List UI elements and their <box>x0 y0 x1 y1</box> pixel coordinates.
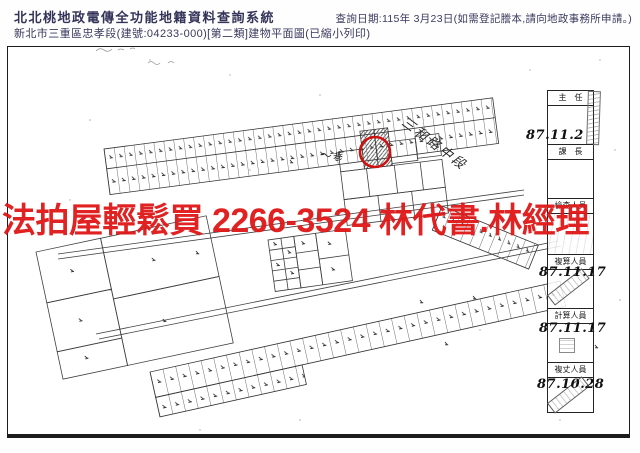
stamp-row-rechecker: 複算人員 87.11.17 <box>548 254 593 308</box>
stamp-row-section-chief: 課 長 <box>548 144 593 198</box>
seal-stamp <box>559 338 575 353</box>
document-page: 北北桃地政電傳全功能地籍資料查詢系統 新北市三重區忠孝段(建號:04233-00… <box>0 0 640 453</box>
stamp-sign-area: 87.11.2 <box>548 106 593 144</box>
document-subtitle: 新北市三重區忠孝段(建號:04233-000)[第二類]建物平面圖(已縮小列印) <box>14 25 370 41</box>
stamp-sign-area: 87.10.28 <box>548 378 593 412</box>
approval-date: 87.11.2 <box>526 129 584 142</box>
system-title: 北北桃地政電傳全功能地籍資料查詢系統 <box>14 7 275 26</box>
stamp-sign-area <box>548 160 593 198</box>
stamp-row-calculator: 計算人員 87.11.17 <box>548 308 593 362</box>
approval-date: 87.11.17 <box>539 266 606 279</box>
stamp-row-director: 主 任 87.11.2 <box>548 91 593 144</box>
approval-date: 87.11.17 <box>539 322 606 335</box>
stamp-row-surveyor: 複丈人員 87.10.28 <box>548 362 593 412</box>
stamp-row-title: 主 任 <box>548 91 593 106</box>
approval-stamp-panel: 主 任 87.11.2 課 長 檢查人員 複算人員 87.11.17 計算人員 … <box>547 90 594 413</box>
stamp-sign-area: 87.11.17 <box>548 270 593 308</box>
watermark-text: 法拍屋輕鬆買 2266-3524 林代書.林經理 <box>2 201 640 242</box>
stamp-row-title: 課 長 <box>548 144 593 160</box>
seal-stamp <box>586 91 601 145</box>
stamp-row-title: 複丈人員 <box>548 362 593 378</box>
approval-date: 87.10.28 <box>537 378 604 391</box>
query-date: 查詢日期:115年 3月23日(如需登記謄本,請向地政事務所申請。) <box>336 11 632 26</box>
stamp-sign-area: 87.11.17 <box>548 324 593 362</box>
